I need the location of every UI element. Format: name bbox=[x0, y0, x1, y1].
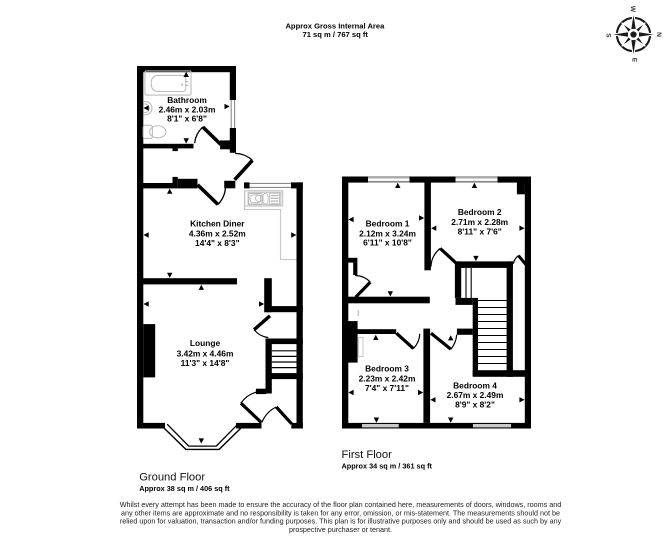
svg-text:S: S bbox=[605, 33, 612, 38]
svg-text:6'11" x 10'8": 6'11" x 10'8" bbox=[363, 238, 412, 248]
svg-text:2.67m x 2.49m: 2.67m x 2.49m bbox=[447, 390, 504, 400]
svg-text:Approx 34 sq m / 361 sq ft: Approx 34 sq m / 361 sq ft bbox=[342, 462, 433, 471]
svg-text:14'4" x 8'3": 14'4" x 8'3" bbox=[195, 238, 240, 248]
svg-text:Bedroom 2: Bedroom 2 bbox=[458, 207, 502, 217]
svg-text:3.42m x 4.46m: 3.42m x 4.46m bbox=[177, 348, 234, 358]
svg-text:W: W bbox=[629, 6, 636, 13]
svg-text:11'3" x 14'8": 11'3" x 14'8" bbox=[181, 358, 230, 368]
svg-text:7'4" x 7'11": 7'4" x 7'11" bbox=[365, 383, 409, 393]
svg-text:prospective purchaser or tenan: prospective purchaser or tenant. bbox=[289, 525, 392, 534]
svg-text:8'1" x 6'8": 8'1" x 6'8" bbox=[167, 113, 207, 123]
svg-text:Lounge: Lounge bbox=[190, 338, 221, 348]
svg-text:Bedroom 3: Bedroom 3 bbox=[365, 363, 409, 373]
svg-text:First Floor: First Floor bbox=[342, 449, 393, 461]
svg-text:8'11" x 7'6": 8'11" x 7'6" bbox=[458, 227, 502, 237]
svg-text:N: N bbox=[655, 32, 662, 37]
svg-text:71 sq m / 767 sq ft: 71 sq m / 767 sq ft bbox=[302, 30, 368, 39]
svg-text:Kitchen Diner: Kitchen Diner bbox=[190, 219, 245, 229]
svg-text:2.71m x 2.28m: 2.71m x 2.28m bbox=[451, 217, 508, 227]
svg-text:E: E bbox=[631, 58, 638, 63]
svg-text:Bedroom 1: Bedroom 1 bbox=[366, 219, 410, 229]
svg-text:Approx 38 sq m / 406 sq ft: Approx 38 sq m / 406 sq ft bbox=[139, 484, 230, 493]
svg-text:8'9" x 8'2": 8'9" x 8'2" bbox=[455, 400, 495, 410]
svg-text:Ground Floor: Ground Floor bbox=[139, 471, 205, 483]
svg-text:Bedroom 4: Bedroom 4 bbox=[453, 381, 497, 391]
